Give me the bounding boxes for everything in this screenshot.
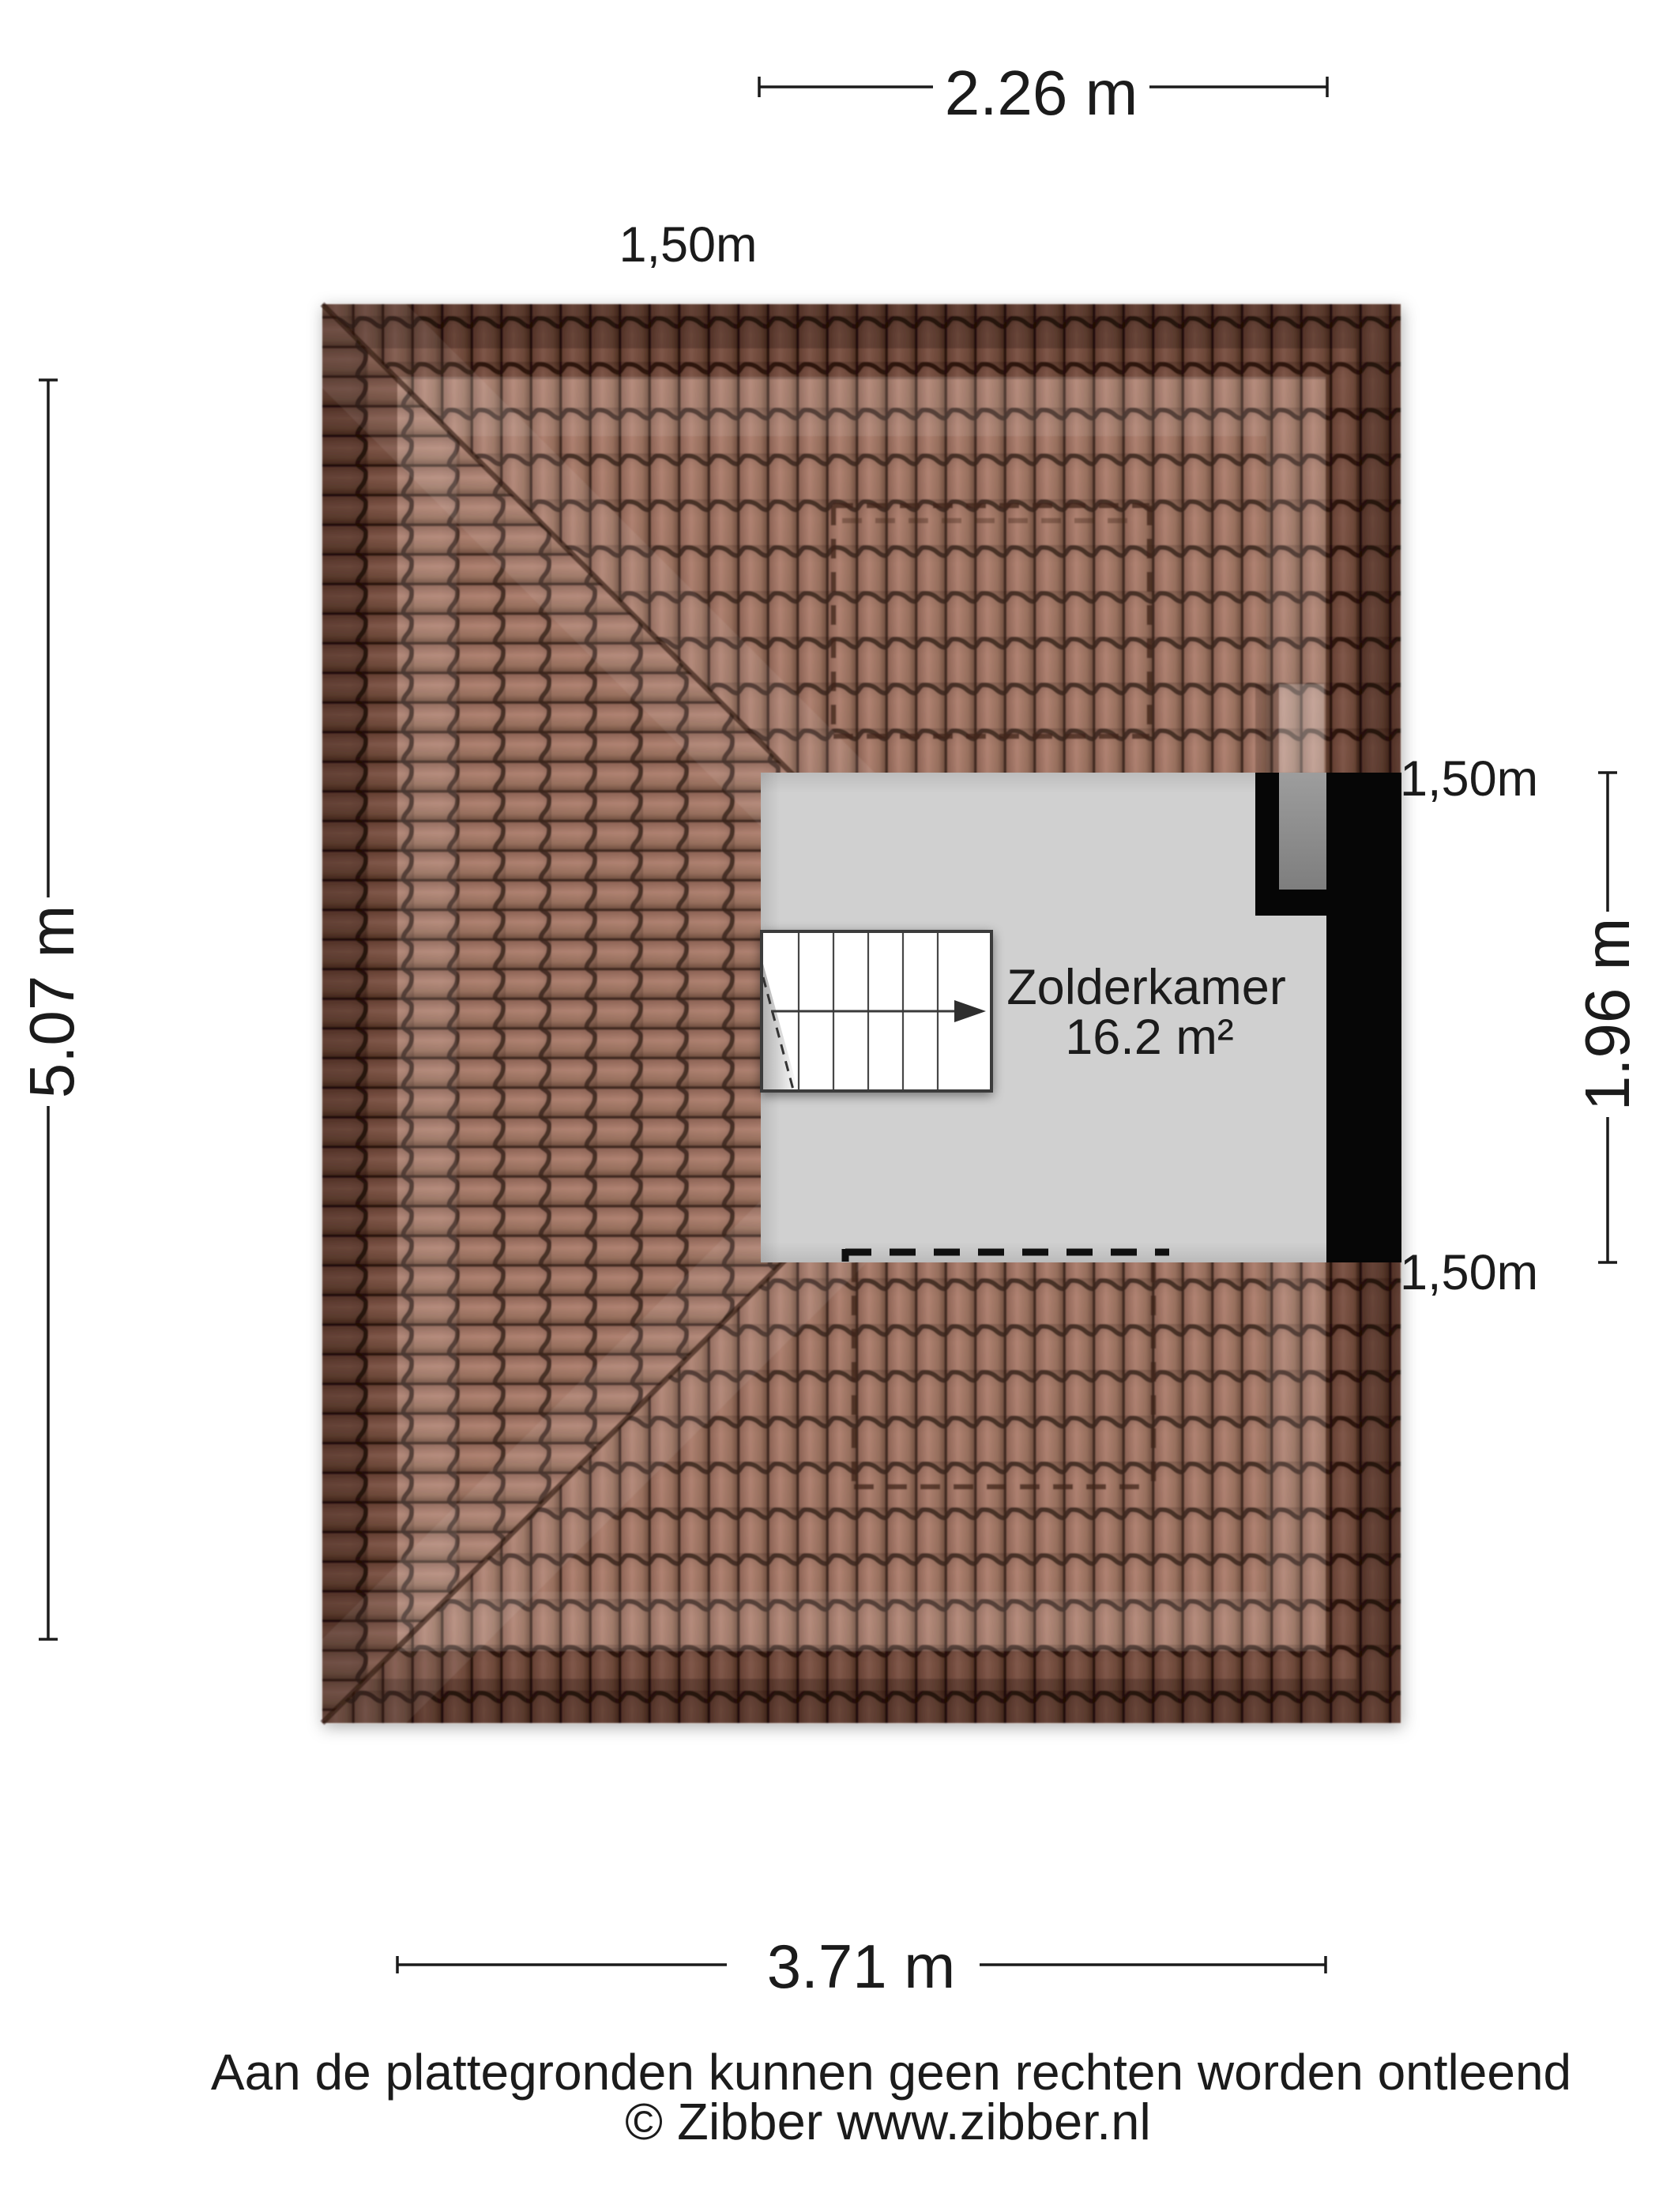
svg-text:1,50m: 1,50m — [1400, 751, 1538, 807]
svg-text:3.71 m: 3.71 m — [767, 1932, 955, 2001]
svg-text:1,50m: 1,50m — [619, 217, 757, 273]
svg-text:1.96 m: 1.96 m — [1572, 918, 1642, 1112]
svg-text:© Zibber www.zibber.nl: © Zibber www.zibber.nl — [625, 2093, 1151, 2150]
svg-text:1,50m: 1,50m — [1400, 1245, 1538, 1300]
svg-text:16.2 m²: 16.2 m² — [1065, 1010, 1234, 1065]
svg-text:2.26 m: 2.26 m — [945, 58, 1138, 128]
svg-text:Zolderkamer: Zolderkamer — [1006, 960, 1286, 1015]
svg-text:5.07 m: 5.07 m — [17, 905, 87, 1099]
